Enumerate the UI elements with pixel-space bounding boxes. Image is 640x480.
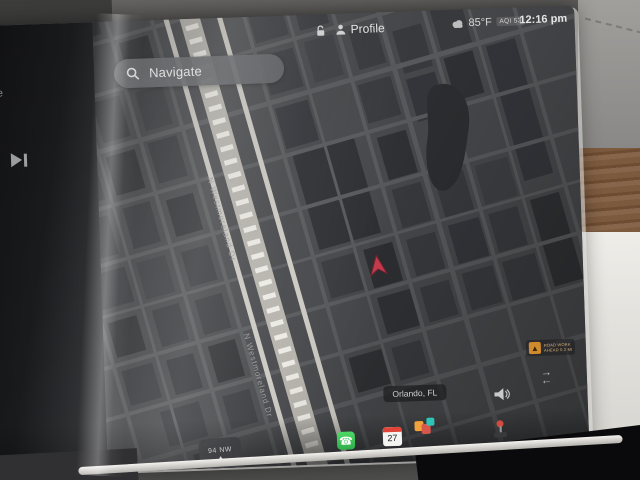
dash-upper-trim [578, 0, 640, 148]
weather-icon [450, 18, 464, 28]
profile-label: Profile [350, 21, 384, 36]
clock-label: 12:16 pm [519, 13, 567, 27]
person-icon [334, 23, 346, 35]
navigate-placeholder: Navigate [149, 63, 202, 80]
speaker-icon[interactable] [493, 387, 511, 407]
arrow-left: ← [541, 376, 552, 384]
phone-app-icon[interactable]: ☎ [337, 431, 356, 450]
arcade-app-icon[interactable] [492, 420, 509, 439]
stitch-seam [585, 18, 640, 37]
mask-teal [426, 418, 434, 426]
theater-app-icon[interactable] [414, 417, 437, 440]
skip-forward-icon[interactable] [11, 153, 27, 168]
joystick-base [494, 432, 507, 437]
skip-triangle [11, 153, 22, 167]
temperature-label: 85°F [468, 16, 492, 29]
reroute-icon[interactable]: → ← [541, 368, 553, 384]
skip-bar [24, 153, 27, 166]
locality-label: Orlando, FL [383, 384, 446, 402]
vehicle-location-arrow [363, 251, 393, 285]
media-source-button[interactable]: Source [0, 87, 4, 100]
search-icon [126, 66, 140, 80]
calendar-app-icon[interactable]: 27 [383, 427, 403, 447]
tesla-touchscreen[interactable]: N Westmoreland Dr N Westmoreland Dr Sour… [0, 5, 590, 476]
media-panel[interactable]: Source [0, 22, 108, 476]
map-alert-badge[interactable]: ▲ ROAD WORK AHEAD 0.2 MI [526, 339, 576, 357]
alert-line2: AHEAD 0.2 MI [544, 347, 573, 353]
alert-icon: ▲ [529, 342, 541, 354]
navigate-search-bar[interactable]: Navigate [114, 54, 285, 89]
dashboard-photo: N Westmoreland Dr N Westmoreland Dr Sour… [0, 0, 640, 480]
driver-profile-button[interactable]: Profile [334, 21, 384, 37]
lock-icon[interactable] [315, 25, 327, 37]
calendar-day-label: 27 [383, 432, 402, 446]
outside-temperature[interactable]: 85°F [450, 16, 492, 29]
wood-trim [578, 148, 640, 232]
